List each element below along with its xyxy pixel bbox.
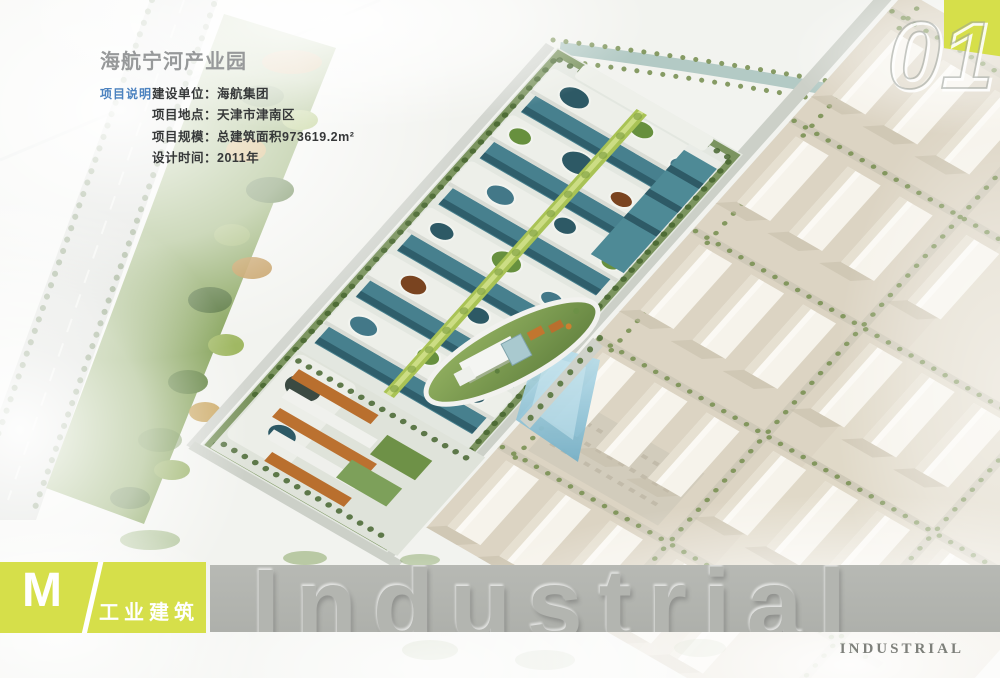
svg-text:01: 01 [887,2,994,109]
info-line-unit: 建设单位：海航集团 [152,84,354,105]
project-info: 建设单位：海航集团 项目地点：天津市津南区 项目规模：总建筑面积973619.2… [152,84,354,169]
info-line-location: 项目地点：天津市津南区 [152,105,354,126]
page-title: 海航宁河产业园 [100,45,247,74]
category-name: 工业建筑 [99,596,199,625]
category-box: M 工业建筑 [0,562,206,633]
project-info-label: 项目说明 [100,85,152,102]
info-line-date: 设计时间：2011年 [152,148,354,169]
category-letter: M [22,569,62,613]
presentation-board: 海航宁河产业园 项目说明 建设单位：海航集团 项目地点：天津市津南区 项目规模：… [0,0,1000,678]
watermark-band: Industrial [210,565,1000,632]
info-line-scale: 项目规模：总建筑面积973619.2m² [152,127,354,148]
page-number-outline: 01 01 [882,0,1000,110]
watermark-text: Industrial [252,565,862,632]
brand-text: INDUSTRIAL [840,641,964,658]
